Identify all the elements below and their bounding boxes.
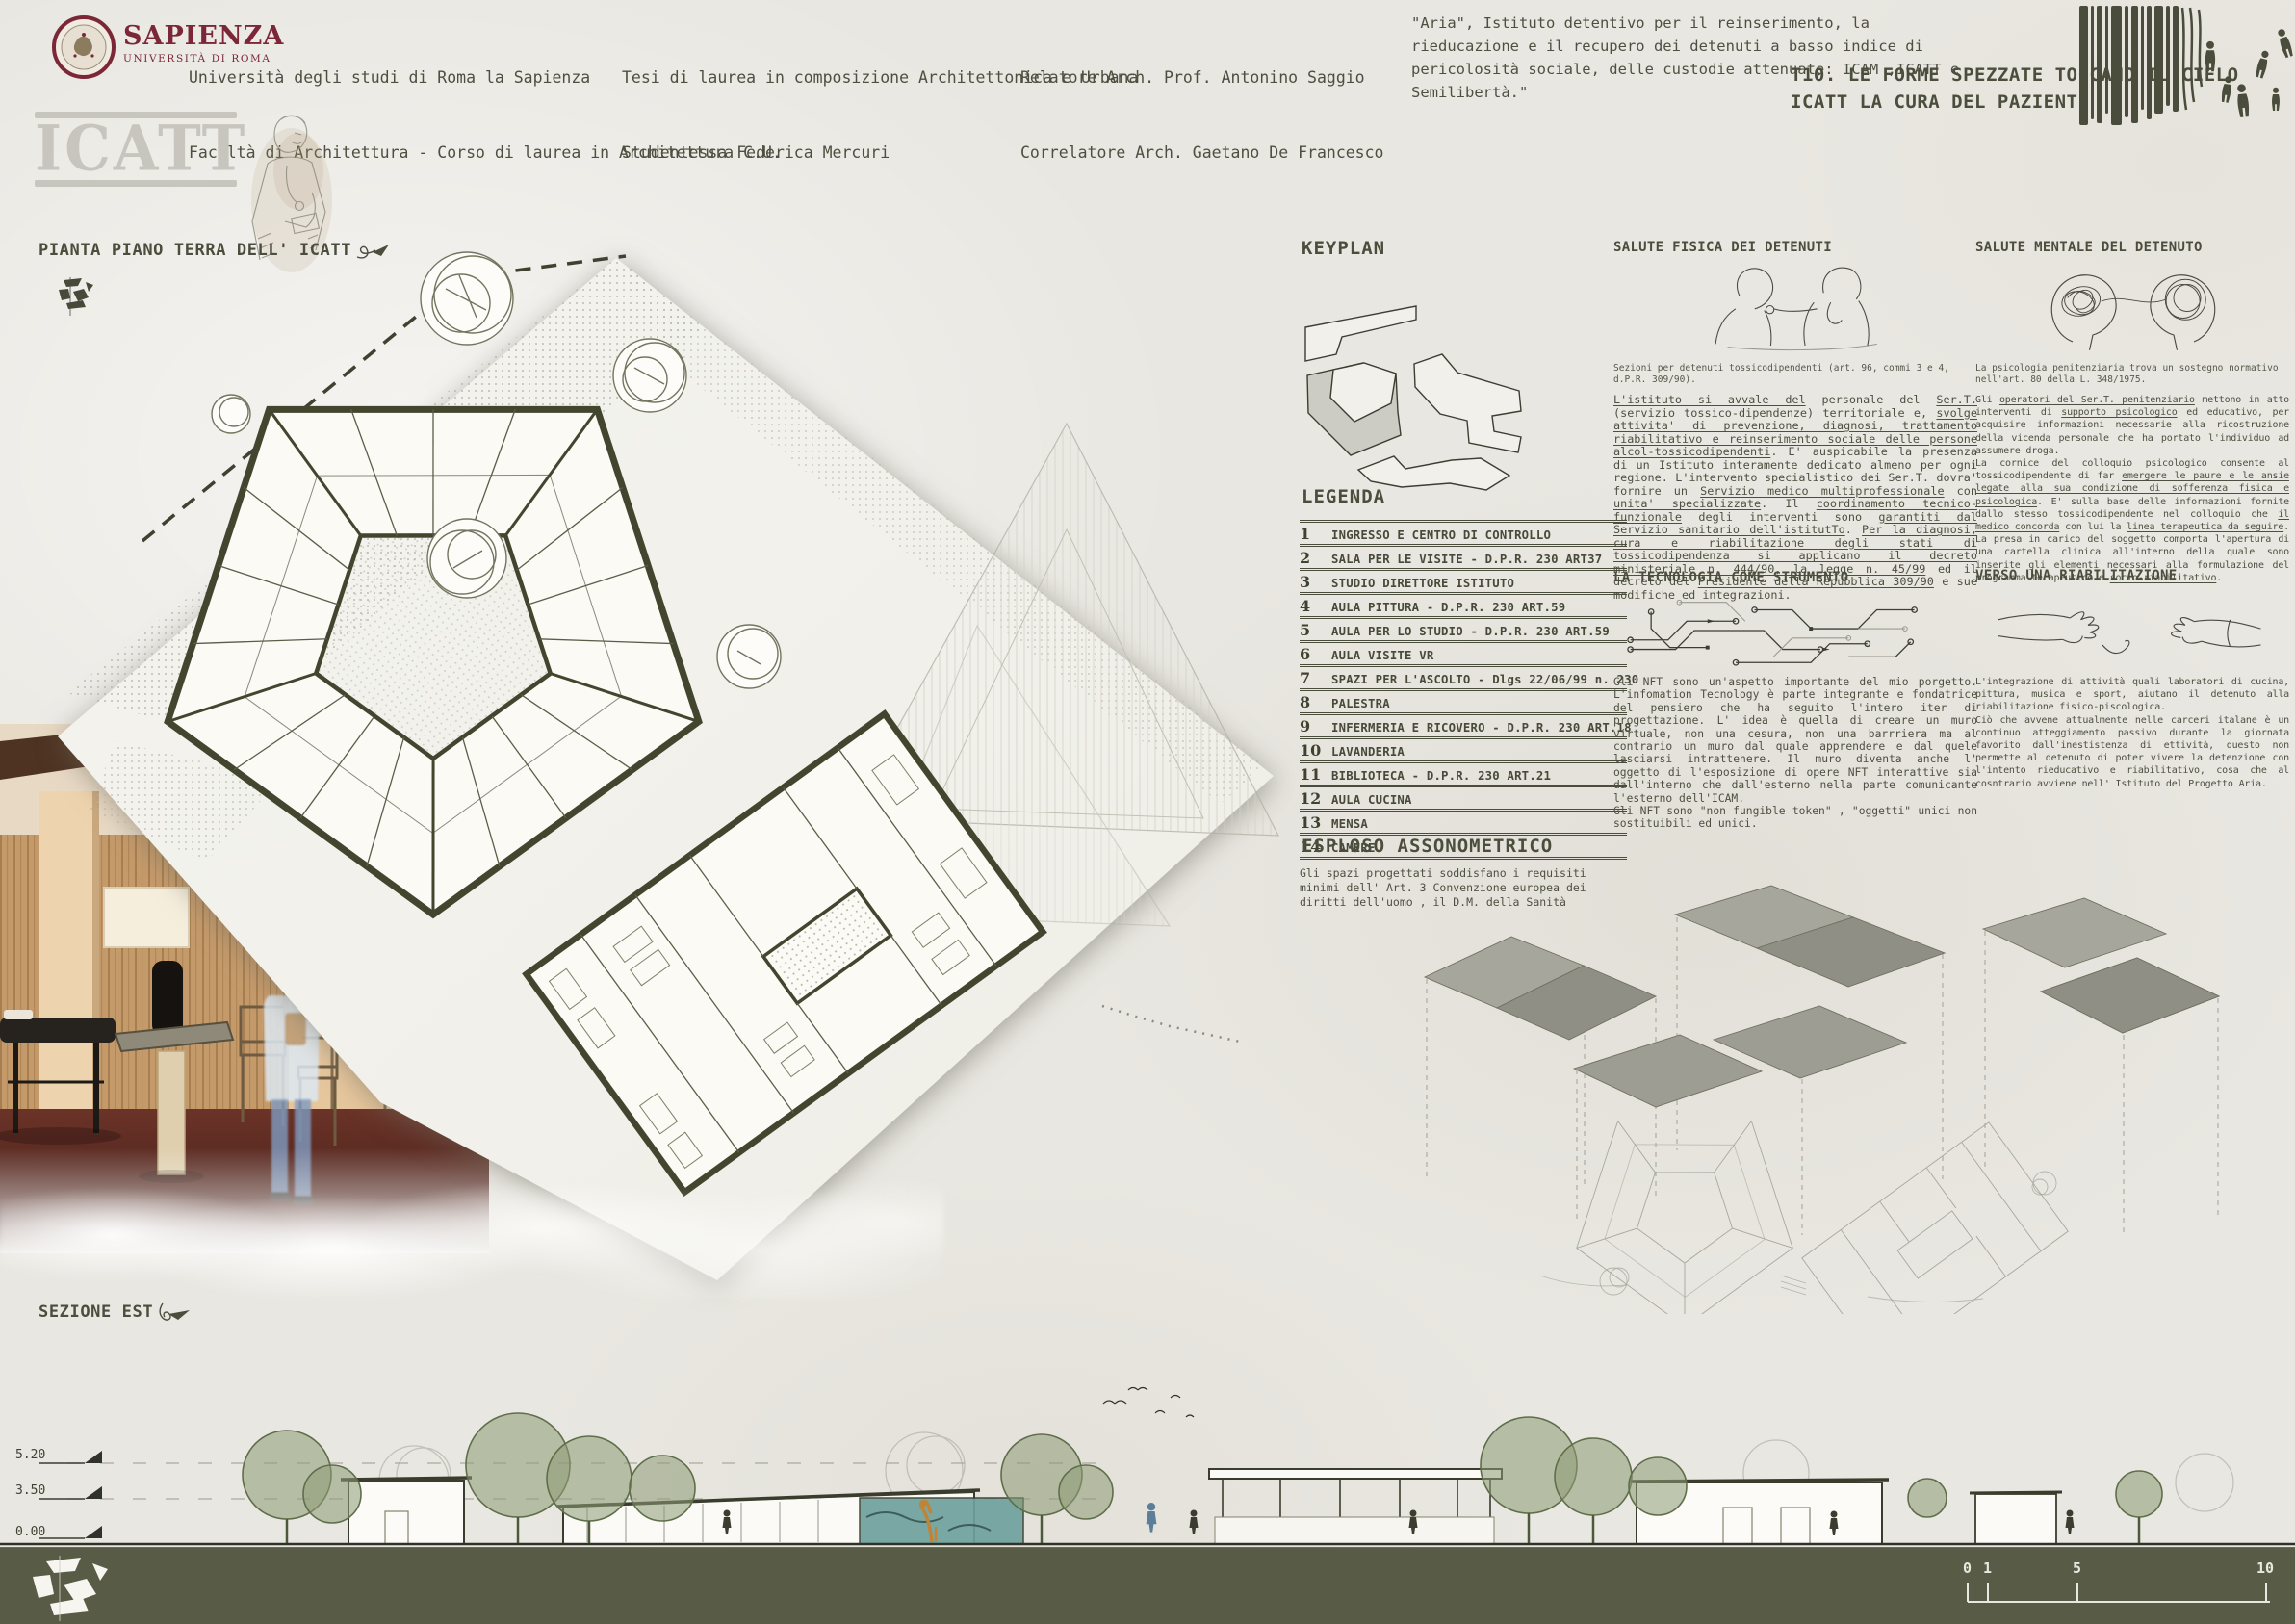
ground-floor-plan — [29, 241, 1290, 1328]
legend-num: 7 — [1300, 669, 1323, 687]
tecnologia-title: LA TECNOLOGIA COME STRUMENTO — [1613, 570, 1977, 585]
salute-fisica-title: SALUTE FISICA DEI DETENUTI — [1613, 240, 1977, 255]
legend-row: 3STUDIO DIRETTORE ISTITUTO — [1300, 571, 1627, 595]
tecnologia-body: Gli NFT sono un'aspetto importante del m… — [1613, 676, 1977, 831]
legend-row: 10LAVANDERIA — [1300, 739, 1627, 763]
hands-illustration — [1985, 589, 2274, 672]
legend-row: 7SPAZI PER L'ASCOLTO - Dlgs 22/06/99 n. … — [1300, 667, 1627, 691]
legend-label: AULA CUCINA — [1331, 793, 1412, 807]
sapienza-crest — [50, 13, 117, 81]
legend-row: 5AULA PER LO STUDIO - D.P.R. 230 ART.59 — [1300, 619, 1627, 643]
legend-row: 1INGRESSO E CENTRO DI CONTROLLO — [1300, 523, 1627, 547]
keyplan-drawing — [1286, 271, 1575, 491]
level-label: 5.20 — [15, 1448, 45, 1462]
scale-tick: 1 — [1983, 1560, 1992, 1577]
legend-label: LAVANDERIA — [1331, 745, 1405, 759]
legend-label: AULA PITTURA - D.P.R. 230 ART.59 — [1331, 601, 1565, 614]
two-minds-illustration — [1989, 261, 2278, 355]
legend-num: 1 — [1300, 525, 1323, 543]
legend-num: 3 — [1300, 573, 1323, 591]
scale-tick: 0 — [1963, 1560, 1972, 1577]
falling-people-silhouettes — [2205, 28, 2293, 117]
legend-label: PALESTRA — [1331, 697, 1390, 710]
scale-bar: 0 1 5 10 — [1952, 1560, 2285, 1617]
legend-num: 9 — [1300, 717, 1323, 735]
circuit-illustration — [1619, 591, 1937, 672]
legend-label: AULA PER LO STUDIO - D.P.R. 230 ART.59 — [1331, 625, 1610, 638]
legend-row: 6AULA VISITE VR — [1300, 643, 1627, 667]
legend-row: 4AULA PITTURA - D.P.R. 230 ART.59 — [1300, 595, 1627, 619]
level-label: 0.00 — [15, 1525, 45, 1539]
legend-label: SALA PER LE VISITE - D.P.R. 230 ART37 — [1331, 553, 1602, 566]
roof-plates — [1425, 886, 2219, 1107]
section-riabilitazione: VERSO UNA RIABILITAZIONE L'integrazio — [1975, 568, 2289, 790]
advisor-line1: Relatore Arch. Prof. Antonino Saggio — [1020, 65, 1384, 90]
scale-bar-lines — [1952, 1560, 2285, 1617]
legend-row: 2SALA PER LE VISITE - D.P.R. 230 ART37 — [1300, 547, 1627, 571]
legend-row: 9INFERMERIA E RICOVERO - D.P.R. 230 ART.… — [1300, 715, 1627, 739]
pinwheel-logo-white-icon — [25, 1556, 125, 1621]
section-salute-mentale: SALUTE MENTALE DEL DETENUTO La psicologi… — [1975, 240, 2289, 584]
legend-num: 8 — [1300, 693, 1323, 711]
header-advisors: Relatore Arch. Prof. Antonino Saggio Cor… — [1020, 15, 1384, 216]
legend-title: LEGENDA — [1302, 486, 1385, 507]
section-tecnologia: LA TECNOLOGIA COME STRUMENTO Gli NFT son… — [1613, 570, 1977, 831]
legend-label: SPAZI PER L'ASCOLTO - Dlgs 22/06/99 n. 2… — [1331, 673, 1638, 686]
legend-row: 11BIBLIOTECA - D.P.R. 230 ART.21 — [1300, 763, 1627, 787]
legend-row: 13MENSA — [1300, 812, 1627, 836]
east-section-drawing — [0, 1328, 2295, 1550]
legend-row: 12AULA CUCINA — [1300, 787, 1627, 812]
section-salute-fisica: SALUTE FISICA DEI DETENUTI Sezioni per d… — [1613, 240, 1977, 602]
legend-num: 13 — [1300, 813, 1323, 832]
legend-label: AULA VISITE VR — [1331, 649, 1433, 662]
legend-label: INGRESSO E CENTRO DI CONTROLLO — [1331, 528, 1551, 542]
legend-num: 6 — [1300, 645, 1323, 663]
riabilitazione-title: VERSO UNA RIABILITAZIONE — [1975, 568, 2289, 583]
salute-fisica-caption: Sezioni per detenuti tossicodipendenti (… — [1613, 363, 1977, 386]
birds — [1103, 1388, 1194, 1418]
level-label: 3.50 — [15, 1483, 45, 1498]
scale-tick: 5 — [2073, 1560, 2081, 1577]
legend-num: 5 — [1300, 621, 1323, 639]
icatt-logo-text: ICATT — [35, 116, 237, 182]
barcode-people-icon — [2077, 2, 2293, 131]
riabilitazione-body: L'integrazione di attività quali laborat… — [1975, 676, 2289, 790]
wireframe-base — [1531, 1058, 2068, 1314]
advisor-line2: Correlatore Arch. Gaetano De Francesco — [1020, 141, 1384, 166]
doctor-patient-illustration — [1633, 261, 1950, 355]
scale-tick: 10 — [2256, 1560, 2274, 1577]
salute-mentale-title: SALUTE MENTALE DEL DETENUTO — [1975, 240, 2289, 255]
salute-mentale-body: Gli operatori del Ser.T. penitenziario m… — [1975, 394, 2289, 584]
thesis-board: SAPIENZA UNIVERSITÀ DI ROMA Università d… — [0, 0, 2295, 1624]
axon-title: ESPLOSO ASSONOMETRICO — [1302, 836, 1553, 857]
legend-num: 12 — [1300, 789, 1323, 808]
legend-num: 11 — [1300, 765, 1323, 784]
legend-num: 4 — [1300, 597, 1323, 615]
icatt-stamp: ICATT — [35, 112, 237, 187]
footer-strip: 0 1 5 10 — [0, 1547, 2295, 1624]
salute-mentale-caption: La psicologia penitenziaria trova un sos… — [1975, 363, 2289, 386]
legend-num: 10 — [1300, 741, 1323, 760]
legend-num: 2 — [1300, 549, 1323, 567]
keyplan-title: KEYPLAN — [1302, 238, 1385, 259]
exploded-axon-drawing — [1367, 862, 2291, 1314]
legend-label: MENSA — [1331, 817, 1368, 831]
legend-label: BIBLIOTECA - D.P.R. 230 ART.21 — [1331, 769, 1551, 783]
legend-label: INFERMERIA E RICOVERO - D.P.R. 230 ART.1… — [1331, 721, 1632, 735]
legend-label: STUDIO DIRETTORE ISTITUTO — [1331, 577, 1514, 590]
legend-row: 8PALESTRA — [1300, 691, 1627, 715]
